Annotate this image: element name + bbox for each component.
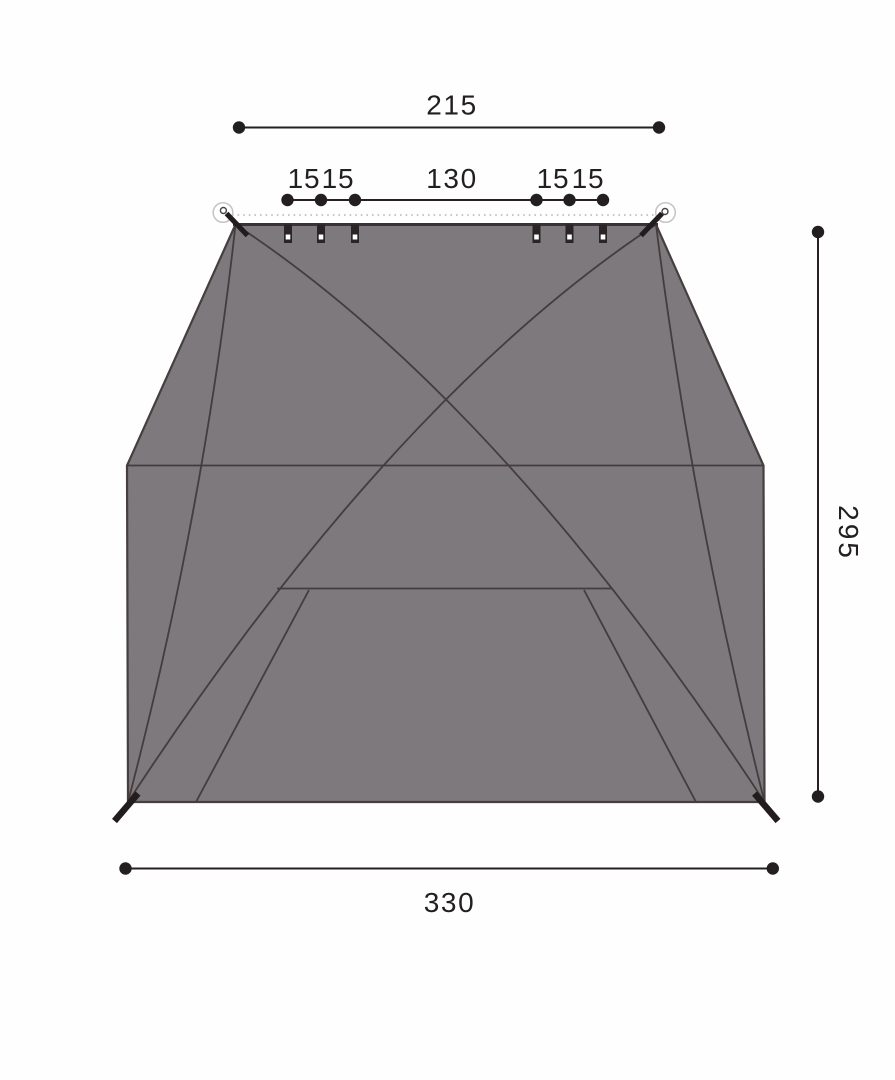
svg-text:15: 15 — [572, 163, 605, 194]
svg-text:15: 15 — [288, 163, 321, 194]
svg-text:130: 130 — [426, 163, 478, 194]
svg-text:215: 215 — [426, 90, 478, 121]
svg-text:295: 295 — [833, 505, 864, 561]
svg-text:15: 15 — [322, 163, 355, 194]
svg-text:15: 15 — [537, 163, 570, 194]
svg-text:330: 330 — [424, 887, 476, 918]
